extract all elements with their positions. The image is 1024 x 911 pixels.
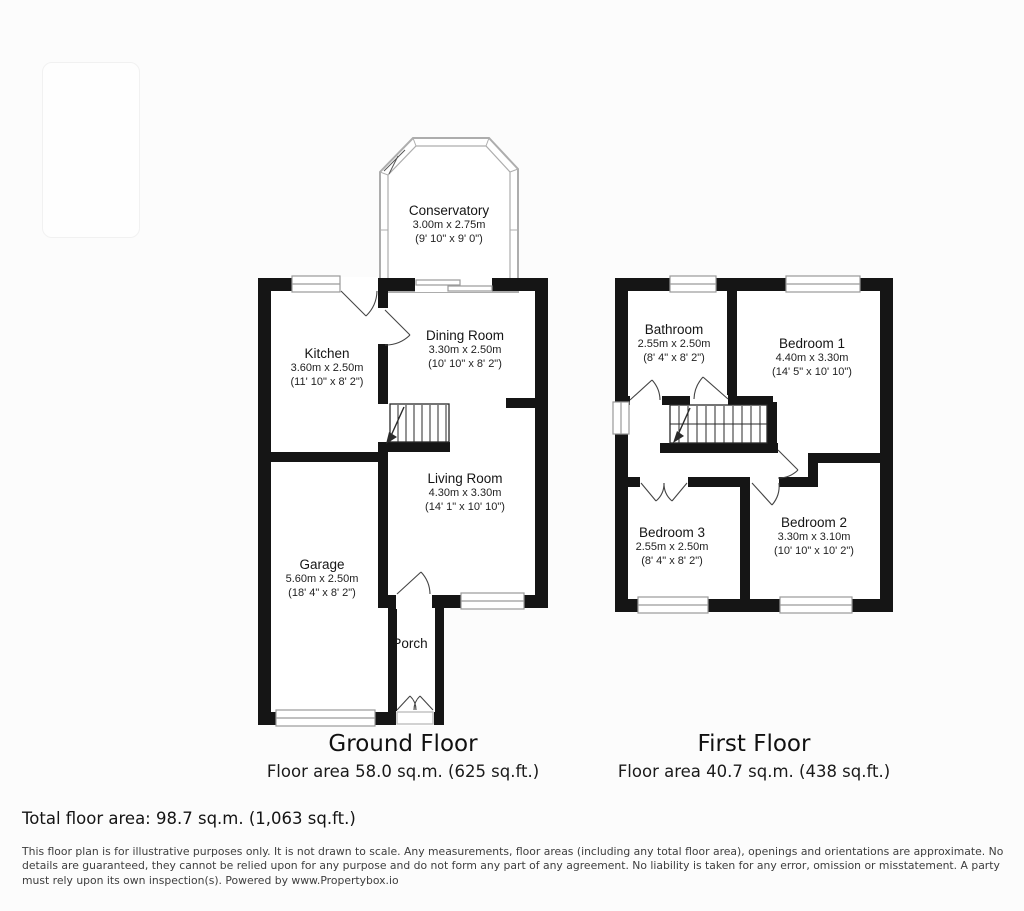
room-label-garage: Garage 5.60m x 2.50m (18' 4" x 8' 2") [250, 557, 394, 600]
room-label-bedroom-3: Bedroom 3 2.55m x 2.50m (8' 4" x 8' 2") [602, 525, 742, 568]
room-label-porch: Porch [380, 636, 440, 652]
room-name: Bedroom 1 [742, 336, 882, 352]
room-dim-imperial: (8' 4" x 8' 2") [602, 555, 742, 568]
room-name: Bedroom 3 [602, 525, 742, 541]
room-dim-metric: 3.30m x 2.50m [395, 344, 535, 357]
room-dim-imperial: (14' 1" x 10' 10") [395, 501, 535, 514]
room-dim-metric: 4.40m x 3.30m [742, 352, 882, 365]
room-name: Kitchen [257, 346, 397, 362]
room-label-dining-room: Dining Room 3.30m x 2.50m (10' 10" x 8' … [395, 328, 535, 371]
first-floor-area: Floor area 40.7 sq.m. (438 sq.ft.) [554, 762, 954, 781]
room-dim-metric: 5.60m x 2.50m [250, 573, 394, 586]
first-floor-title: First Floor [554, 731, 954, 757]
total-floor-area: Total floor area: 98.7 sq.m. (1,063 sq.f… [22, 809, 356, 828]
room-dim-metric: 2.55m x 2.50m [602, 541, 742, 554]
room-dim-metric: 3.00m x 2.75m [379, 219, 519, 232]
ground-floor-title: Ground Floor [203, 731, 603, 757]
room-dim-imperial: (10' 10" x 8' 2") [395, 358, 535, 371]
room-name: Porch [380, 636, 440, 652]
room-dim-imperial: (10' 10" x 10' 2") [744, 545, 884, 558]
floorplan-page: Conservatory 3.00m x 2.75m (9' 10" x 9' … [0, 0, 1024, 911]
room-dim-imperial: (11' 10" x 8' 2") [257, 376, 397, 389]
ground-floor-area: Floor area 58.0 sq.m. (625 sq.ft.) [203, 762, 603, 781]
room-dim-imperial: (9' 10" x 9' 0") [379, 233, 519, 246]
disclaimer-text: This floor plan is for illustrative purp… [22, 845, 1014, 888]
room-name: Dining Room [395, 328, 535, 344]
room-name: Bathroom [604, 322, 744, 338]
room-dim-imperial: (18' 4" x 8' 2") [250, 587, 394, 600]
ground-floor-stairs [386, 404, 449, 444]
room-label-bedroom-1: Bedroom 1 4.40m x 3.30m (14' 5" x 10' 10… [742, 336, 882, 379]
room-label-living-room: Living Room 4.30m x 3.30m (14' 1" x 10' … [395, 471, 535, 514]
room-label-kitchen: Kitchen 3.60m x 2.50m (11' 10" x 8' 2") [257, 346, 397, 389]
room-dim-metric: 3.30m x 3.10m [744, 531, 884, 544]
room-label-bathroom: Bathroom 2.55m x 2.50m (8' 4" x 8' 2") [604, 322, 744, 365]
room-name: Bedroom 2 [744, 515, 884, 531]
room-dim-imperial: (14' 5" x 10' 10") [742, 366, 882, 379]
room-name: Living Room [395, 471, 535, 487]
room-label-bedroom-2: Bedroom 2 3.30m x 3.10m (10' 10" x 10' 2… [744, 515, 884, 558]
room-name: Conservatory [379, 203, 519, 219]
room-dim-imperial: (8' 4" x 8' 2") [604, 352, 744, 365]
room-label-conservatory: Conservatory 3.00m x 2.75m (9' 10" x 9' … [379, 203, 519, 246]
room-dim-metric: 2.55m x 2.50m [604, 338, 744, 351]
room-dim-metric: 4.30m x 3.30m [395, 487, 535, 500]
first-floor-stairs [670, 405, 767, 443]
room-name: Garage [250, 557, 394, 573]
room-dim-metric: 3.60m x 2.50m [257, 362, 397, 375]
